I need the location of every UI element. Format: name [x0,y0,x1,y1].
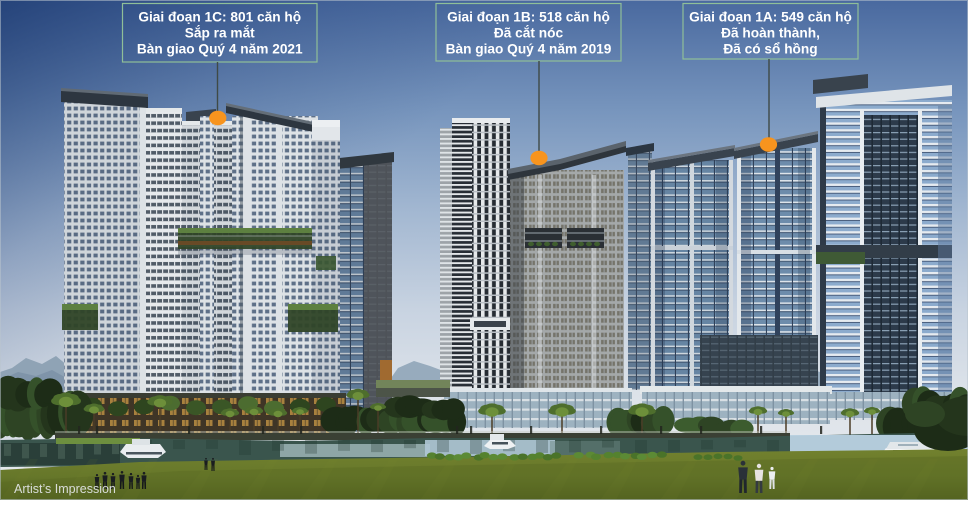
svg-text:Bàn giao Quý 4 năm 2021: Bàn giao Quý 4 năm 2021 [137,42,303,57]
svg-text:Sắp ra mắt: Sắp ra mắt [185,26,255,41]
svg-text:Đã có sổ hồng: Đã có sổ hồng [723,42,817,57]
svg-text:Giai đoạn 1A: 549 căn hộ: Giai đoạn 1A: 549 căn hộ [689,10,852,25]
svg-text:Đã cắt nóc: Đã cắt nóc [494,26,564,41]
svg-text:Giai đoạn 1C: 801 căn hộ: Giai đoạn 1C: 801 căn hộ [138,10,301,25]
svg-text:Đã hoàn thành,: Đã hoàn thành, [721,26,820,41]
svg-text:Giai đoạn 1B: 518 căn hộ: Giai đoạn 1B: 518 căn hộ [447,10,610,25]
svg-text:Artist’s Impression: Artist’s Impression [14,482,116,496]
svg-text:Bàn giao Quý 4 năm 2019: Bàn giao Quý 4 năm 2019 [446,42,612,57]
